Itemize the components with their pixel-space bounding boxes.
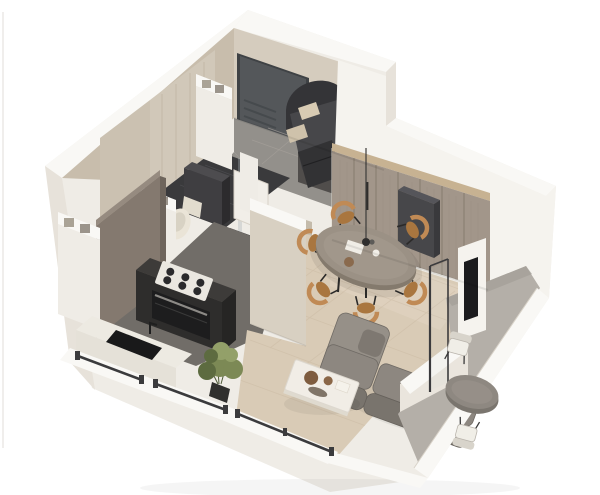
washer-side <box>222 176 230 226</box>
band-step-face <box>386 62 396 126</box>
block-core <box>215 85 224 93</box>
stub-entry-face <box>196 86 232 170</box>
isometric-scene <box>0 0 600 495</box>
stub-kitchen-left <box>58 212 100 330</box>
pendant-head <box>362 238 370 246</box>
block-core <box>202 80 211 88</box>
block-core <box>80 224 90 233</box>
stub-entry <box>196 74 232 170</box>
stub-kitchen-face <box>58 224 100 330</box>
cabinet-side <box>434 200 440 258</box>
half-wall-face <box>250 210 306 346</box>
floor-plan-render <box>0 0 600 495</box>
block-core <box>64 218 74 227</box>
table-bowl <box>344 257 354 267</box>
sliding-door-glass <box>431 261 447 390</box>
table-vase <box>369 239 374 244</box>
tv <box>464 257 478 321</box>
